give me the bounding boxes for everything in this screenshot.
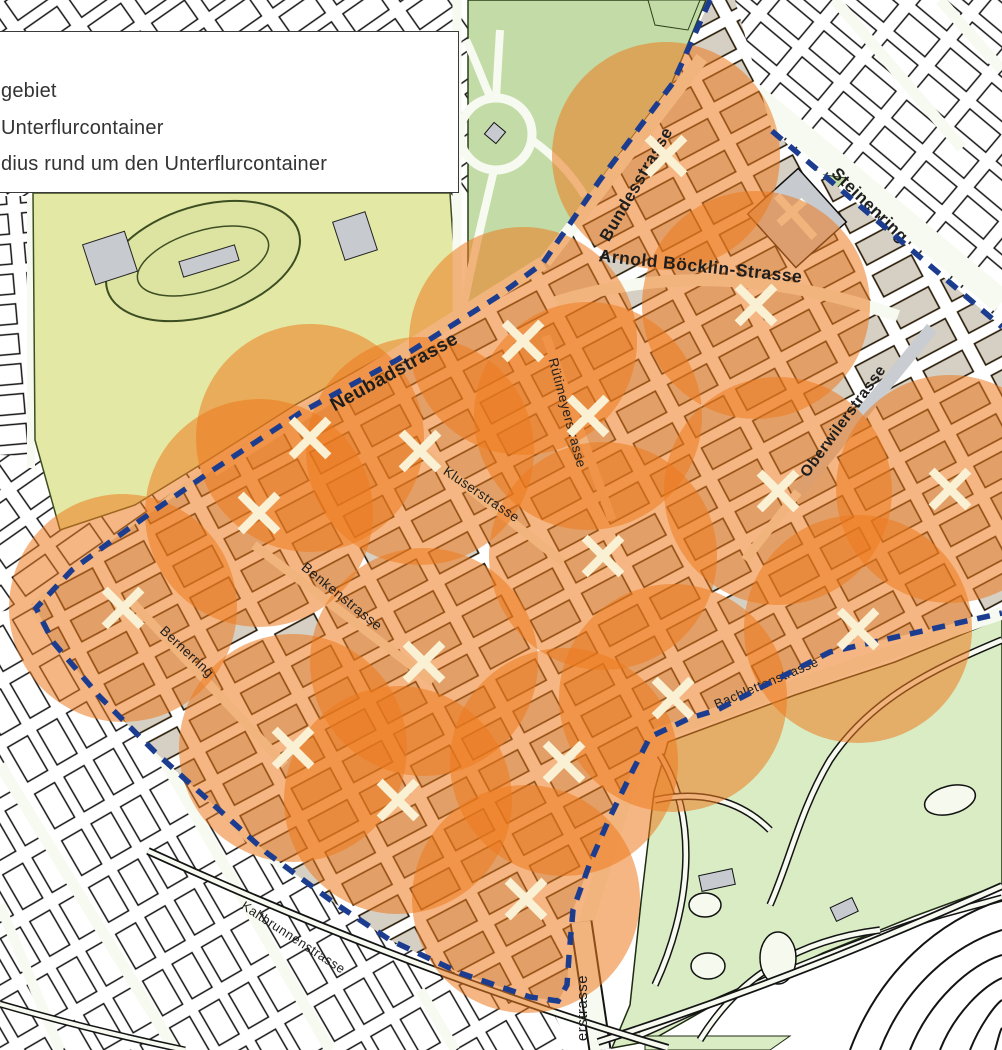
legend-box: gebiet Unterflurcontainer dius rund um d…	[0, 31, 459, 193]
map-stage: BundesstrasseSteinenringArnold Böcklin-S…	[0, 0, 1002, 1050]
street-label: erstrasse	[574, 975, 591, 1041]
legend-row-unterflurcontainer: Unterflurcontainer	[1, 117, 164, 140]
legend-row-pilotgebiet: gebiet	[1, 80, 57, 103]
legend-row-radius: dius rund um den Unterflurcontainer	[1, 153, 327, 176]
